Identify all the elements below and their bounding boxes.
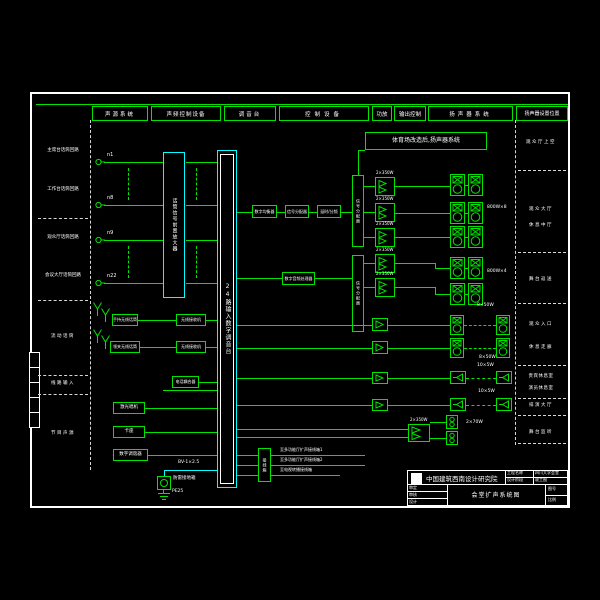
wire xyxy=(237,437,408,438)
wire xyxy=(271,475,340,476)
amplifier-icon xyxy=(372,372,388,384)
wire xyxy=(364,263,375,264)
channel-ellipsis xyxy=(196,168,197,200)
amplifier-icon xyxy=(372,341,388,354)
wire xyxy=(388,325,450,326)
wire xyxy=(364,287,375,288)
wire xyxy=(186,162,217,163)
dashed-wire xyxy=(466,405,496,406)
section-label: 主席台话筒回路 xyxy=(36,147,90,155)
cd-player-box: 激光唱机 xyxy=(113,402,145,414)
position-separator xyxy=(518,252,566,253)
speaker-icon xyxy=(468,174,483,196)
position-label: 观众厅上空 xyxy=(516,139,566,147)
wire xyxy=(104,283,163,284)
institute-name: 中国建筑西南设计研究院 xyxy=(426,476,498,483)
antenna-icon xyxy=(101,335,110,350)
drawing-no-label: 图号 xyxy=(548,487,556,491)
tape-deck-box: 卡座 xyxy=(113,426,145,438)
section-label: 观众厅话筒回路 xyxy=(36,234,90,242)
wire xyxy=(435,268,450,269)
wire xyxy=(430,422,446,423)
mic-channel-label: n9 xyxy=(107,231,113,236)
sign-label: 审定 xyxy=(409,486,417,490)
header-col-speaker-location: 扬声器设置位置 xyxy=(516,106,568,121)
amp-model-label: 2×350W xyxy=(376,197,394,201)
wire xyxy=(364,237,375,238)
phone-coupler-box: 电话耦合器 xyxy=(172,376,199,388)
wire xyxy=(206,320,217,321)
left-column-divider xyxy=(90,120,91,470)
project-name-label: 工程名称 xyxy=(507,471,523,475)
wire xyxy=(358,150,359,175)
position-label: 演员休息室 xyxy=(516,385,566,393)
section-separator xyxy=(38,218,88,219)
amp-model-label: 2×350W xyxy=(376,222,394,226)
amp-model-label: 2×350W xyxy=(376,171,394,175)
wire xyxy=(199,382,217,383)
section-separator xyxy=(38,394,88,395)
preamp-box: 话筒信号前置放大器 xyxy=(163,152,185,298)
wire xyxy=(104,162,163,163)
wire xyxy=(271,465,365,466)
amplifier-icon xyxy=(375,203,395,222)
stage-label: 设计阶段 xyxy=(507,478,523,482)
wire xyxy=(435,294,450,295)
dashed-wire xyxy=(464,325,496,326)
splitter-box: 信号分配器 xyxy=(285,205,309,218)
speaker-icon xyxy=(468,283,483,305)
tuner-box: 数字调谐器 xyxy=(113,449,148,461)
section-label: 流动话筒 xyxy=(36,333,90,341)
title-block-line xyxy=(407,484,568,485)
distributor-b-box: 信号分配器 xyxy=(352,255,364,332)
wire xyxy=(388,348,450,349)
header-col-control-equip: 控制设备 xyxy=(279,106,369,121)
wire xyxy=(140,347,176,348)
amp-model-label: 2×350W xyxy=(410,418,428,422)
wire xyxy=(237,378,372,379)
revision-strip xyxy=(29,352,40,428)
header-top-line xyxy=(36,104,568,105)
position-label: 排演大厅 xyxy=(516,402,566,410)
strip-line xyxy=(29,367,40,368)
wire xyxy=(237,429,408,430)
ground-symbol-bar xyxy=(158,493,170,494)
wire xyxy=(237,325,372,326)
header-col-sound-source: 声源系统 xyxy=(92,106,148,121)
delay-crossover-box: 延时/分频 xyxy=(317,205,341,218)
header-col-speaker-system: 扬声器系统 xyxy=(428,106,513,121)
speaker-icon xyxy=(450,226,465,248)
scale-label: 比例 xyxy=(548,498,556,502)
wireless-receiver-box: 无线接收机 xyxy=(176,314,206,326)
dsp-processor-box: 数字音频处理器 xyxy=(282,272,315,285)
header-col-mixer: 调音台 xyxy=(224,106,276,121)
wire xyxy=(395,287,435,288)
wire xyxy=(430,438,446,439)
power-label: 10×5W xyxy=(478,390,495,395)
header-col-amplifier: 功放 xyxy=(372,106,392,121)
wire xyxy=(309,212,317,213)
wire xyxy=(237,212,252,213)
speaker-icon xyxy=(468,226,483,248)
amp-model-label: 2×350W xyxy=(376,272,394,276)
position-label: 舞台监听 xyxy=(516,429,566,437)
speaker-icon xyxy=(450,174,465,196)
wire xyxy=(148,455,217,456)
tie-line-label: 至电视转播接线箱 xyxy=(280,468,312,472)
wire xyxy=(138,320,176,321)
power-label: 2×70W xyxy=(466,421,483,426)
title-block-line xyxy=(545,495,568,496)
power-label: 800W×8 xyxy=(487,206,507,211)
wire xyxy=(237,455,258,456)
position-separator xyxy=(518,170,566,171)
wire xyxy=(395,186,450,187)
wire xyxy=(237,348,372,349)
antenna-icon xyxy=(101,308,110,323)
section-separator xyxy=(38,300,88,301)
wire xyxy=(186,283,217,284)
channel-ellipsis xyxy=(196,246,197,278)
position-separator xyxy=(518,415,566,416)
dashed-wire xyxy=(466,378,496,379)
power-label: 10×5W xyxy=(477,364,494,369)
ground-symbol-bar xyxy=(160,496,168,497)
wire xyxy=(395,213,450,214)
horn-speaker-icon xyxy=(450,398,466,411)
wire xyxy=(237,475,258,476)
mic-channel-label: n8 xyxy=(107,196,113,201)
position-label: 舞台返送 xyxy=(516,276,566,284)
speaker-icon xyxy=(468,257,483,279)
drawing-title: 会堂扩声系统图 xyxy=(447,487,545,503)
position-label: 观众大厅 xyxy=(516,206,566,214)
drawing-sheet: 声源系统 声频控制设备 调音台 控制设备 功放 输出控制 扬声器系统 扬声器设置… xyxy=(0,0,600,600)
header-col-output-control: 输出控制 xyxy=(394,106,426,121)
speaker-icon xyxy=(450,202,465,224)
column-speaker-icon xyxy=(446,415,458,429)
wire xyxy=(186,205,217,206)
position-separator xyxy=(518,365,566,366)
strip-line xyxy=(29,412,40,413)
wireless-mic-lavalier-box: 领夹无线话筒 xyxy=(110,341,140,353)
wire xyxy=(271,455,365,456)
position-separator xyxy=(518,443,566,444)
mic-channel-label: n22 xyxy=(107,274,117,279)
speaker-icon xyxy=(450,283,465,305)
amplifier-icon xyxy=(372,318,388,331)
ground-box-label: 防雷接地箱 xyxy=(173,477,196,482)
wire xyxy=(145,408,217,409)
channel-ellipsis xyxy=(128,246,129,278)
speaker-icon xyxy=(496,338,510,358)
wire xyxy=(388,405,450,406)
wire xyxy=(395,237,450,238)
wire xyxy=(388,378,450,379)
wire xyxy=(237,405,372,406)
banner-note: 体育场改造后,扬声器系统 xyxy=(365,132,487,150)
section-label: 工作台话筒回路 xyxy=(36,186,90,194)
wire xyxy=(395,263,435,264)
horn-speaker-icon xyxy=(496,398,512,411)
wire xyxy=(364,212,375,213)
position-label: 贵宾休息室 xyxy=(516,373,566,381)
project-name: 四川大学会堂 xyxy=(535,471,559,475)
section-separator xyxy=(38,375,88,376)
position-label: 休息走廊 xyxy=(516,344,566,352)
tie-line-label: 至多功能厅扩声接线箱1 xyxy=(280,448,323,452)
amplifier-icon xyxy=(375,177,395,196)
wireless-receiver-box: 无线接收机 xyxy=(176,341,206,353)
section-label: 线路输入 xyxy=(36,380,90,388)
amplifier-icon xyxy=(408,424,430,442)
wire xyxy=(104,240,163,241)
wire xyxy=(277,212,285,213)
wire xyxy=(104,205,163,206)
speaker-icon xyxy=(468,202,483,224)
speaker-icon xyxy=(450,257,465,279)
amplifier-icon xyxy=(372,399,388,411)
column-speaker-icon xyxy=(446,431,458,445)
wire xyxy=(315,278,352,279)
wire xyxy=(145,432,217,433)
speaker-icon xyxy=(496,315,510,335)
horn-speaker-icon xyxy=(496,371,512,384)
lightning-ground-box xyxy=(157,476,171,490)
strip-line xyxy=(29,397,40,398)
channel-ellipsis xyxy=(128,168,129,200)
wire xyxy=(237,465,258,466)
stage-value: 竣工图 xyxy=(535,478,547,482)
wire xyxy=(435,287,436,294)
speaker-icon xyxy=(450,338,464,358)
horn-speaker-icon xyxy=(450,371,466,384)
speaker-icon xyxy=(450,315,464,335)
wire xyxy=(186,240,217,241)
power-label: 800W×4 xyxy=(487,270,507,275)
sign-label: 审核 xyxy=(409,493,417,497)
wire xyxy=(358,150,365,151)
position-separator xyxy=(518,303,566,304)
power-label: 8×50W xyxy=(477,304,494,309)
amplifier-icon xyxy=(375,228,395,247)
position-label: 休息中厅 xyxy=(516,222,566,230)
distributor-a-box: 信号分配器 xyxy=(352,175,364,247)
position-separator xyxy=(518,398,566,399)
ground-cable-label: BV-1×2.5 xyxy=(178,461,199,466)
position-label: 观众入口 xyxy=(516,321,566,329)
mic-channel-label: n1 xyxy=(107,153,113,158)
tie-line-label: 至多功能厅扩声接线箱2 xyxy=(280,458,323,462)
wire xyxy=(237,278,282,279)
equalizer-box: 数字均衡器 xyxy=(252,205,277,218)
amplifier-icon xyxy=(375,278,395,297)
dashed-wire xyxy=(464,348,496,349)
wire xyxy=(163,390,217,391)
mixer-box: 24路输入数字调音台 xyxy=(220,154,234,484)
power-label: 8×50W xyxy=(479,356,496,361)
wire xyxy=(364,186,375,187)
section-label: 节目声源 xyxy=(36,430,90,438)
amp-model-label: 2×350W xyxy=(376,248,394,252)
wire xyxy=(341,212,352,213)
ground-terminal-label: PE25 xyxy=(172,490,183,495)
wire xyxy=(206,347,217,348)
junction-box: 接线箱 xyxy=(258,448,271,482)
ground-wire xyxy=(164,470,217,471)
section-label: 会议大厅话筒回路 xyxy=(36,272,90,280)
ground-symbol-bar xyxy=(162,499,166,500)
header-col-audio-control: 声频控制设备 xyxy=(151,106,221,121)
sign-label: 设计 xyxy=(409,500,417,504)
wireless-mic-handheld-box: 手持无线话筒 xyxy=(112,314,138,326)
institute-logo xyxy=(411,473,422,484)
